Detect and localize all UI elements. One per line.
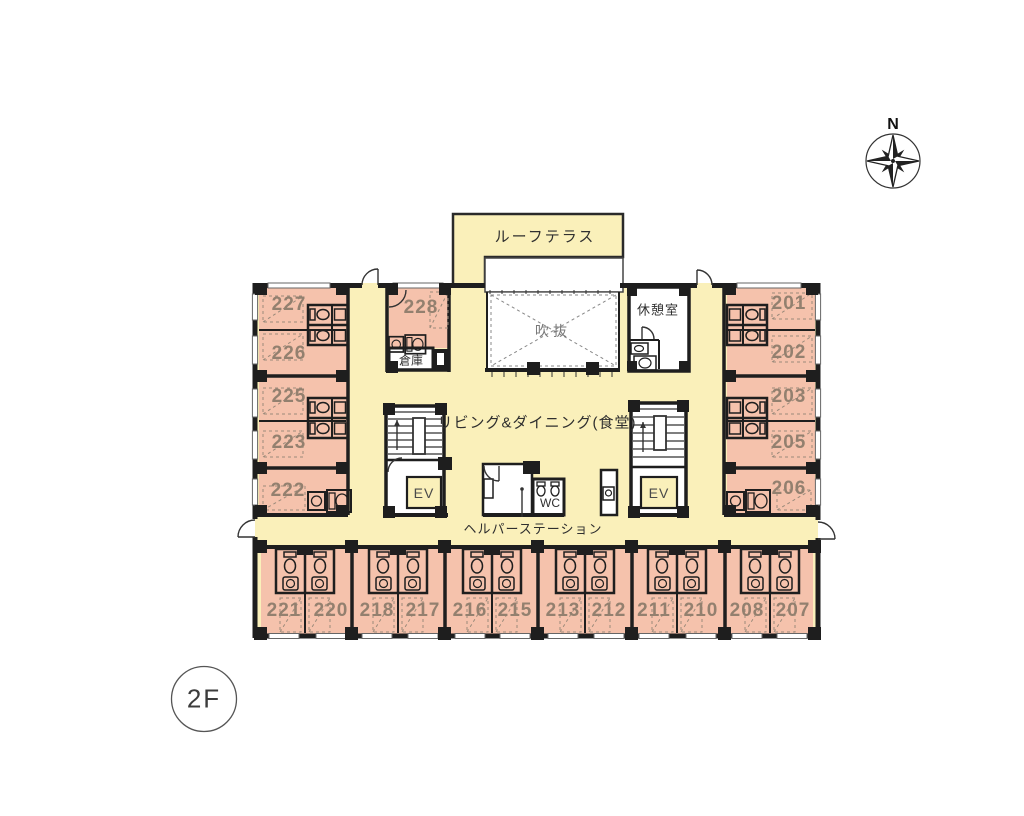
floor-plan-drawing (0, 0, 1024, 816)
elevator-right-car (641, 477, 677, 508)
atrium-landing (485, 258, 623, 292)
right-wing-rooms (727, 287, 815, 513)
elevator-left-car (407, 477, 441, 508)
left-wing-rooms (259, 287, 347, 513)
floor-plan-page: ルーフテラス 吹抜 休憩室 リビング&ダイニング(食堂) 倉庫 WC EV EV… (0, 0, 1024, 816)
compass-icon (866, 134, 920, 188)
floor-indicator-circle (172, 667, 237, 732)
